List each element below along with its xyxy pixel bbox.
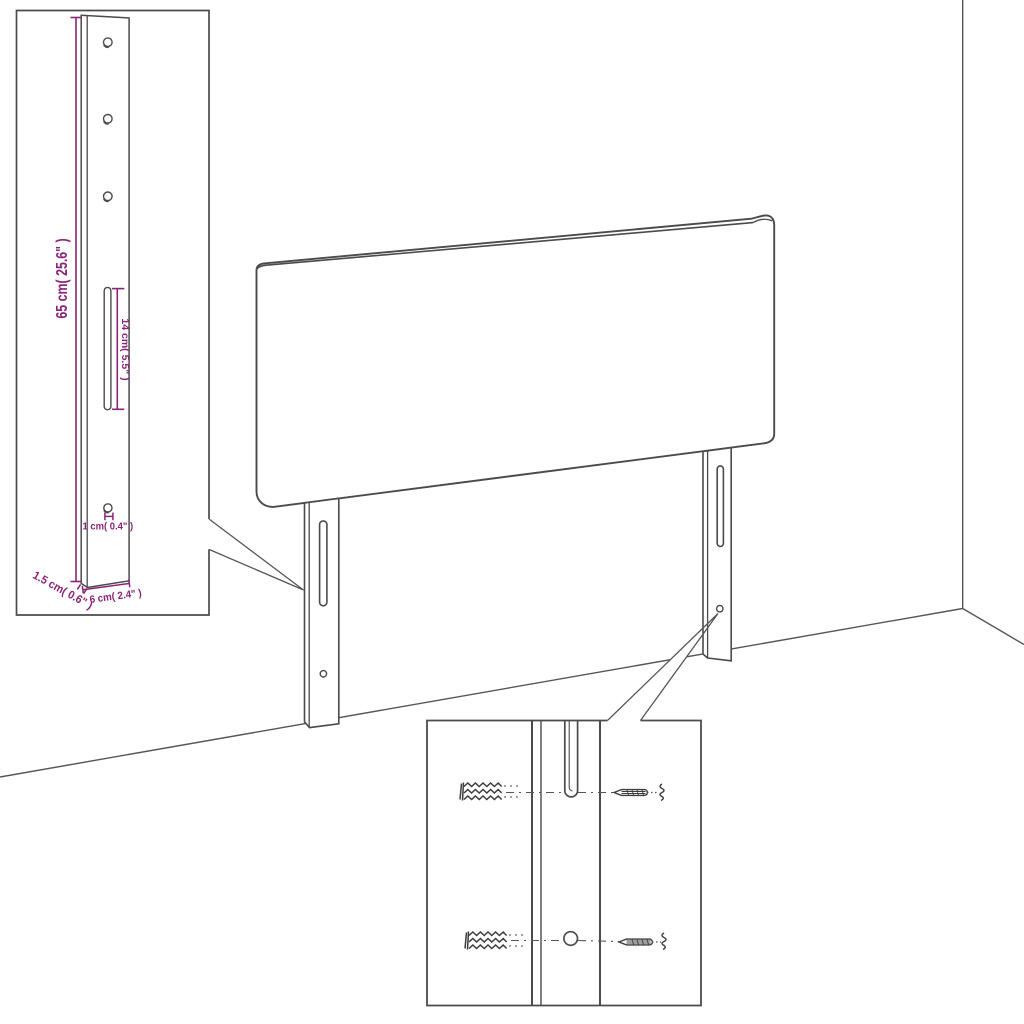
svg-text:65 cm( 25.6" ): 65 cm( 25.6" ) <box>54 238 72 318</box>
svg-text:14 cm( 5.5" ): 14 cm( 5.5" ) <box>119 318 131 380</box>
svg-text:1 cm( 0.4" ): 1 cm( 0.4" ) <box>82 521 133 533</box>
